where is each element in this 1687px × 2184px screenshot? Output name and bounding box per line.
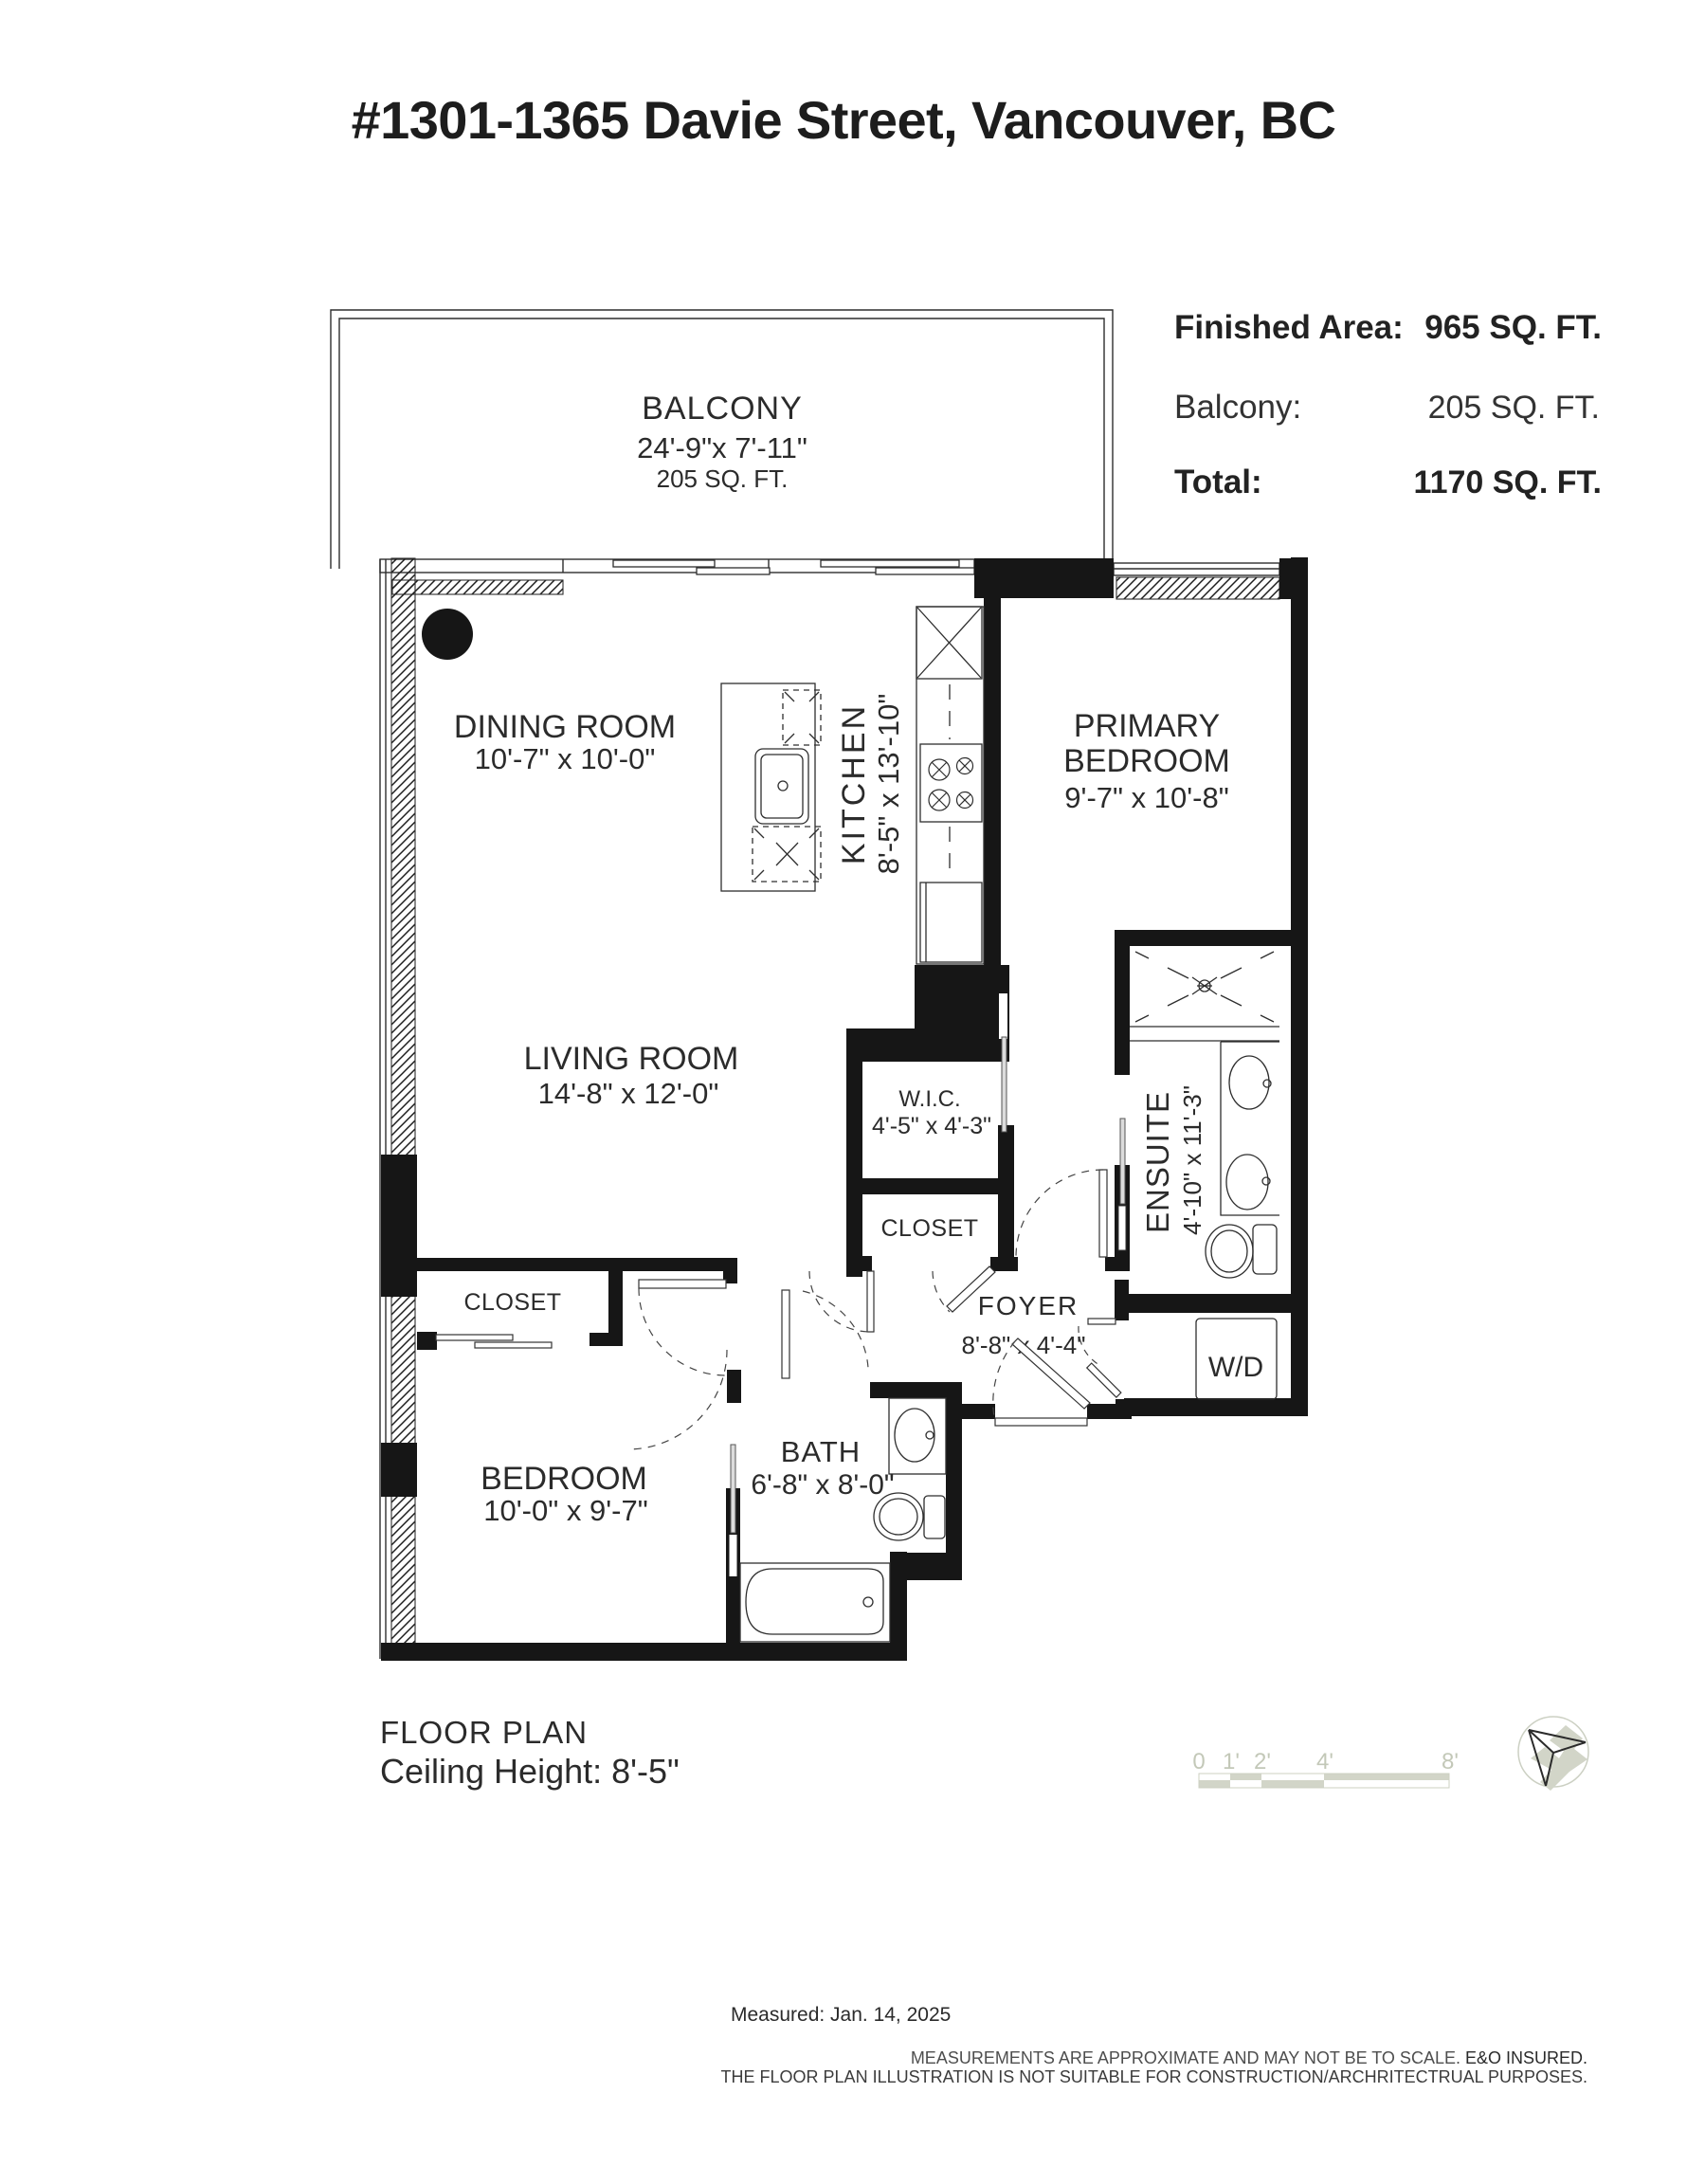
svg-text:DINING ROOM: DINING ROOM <box>454 709 676 745</box>
svg-text:THE FLOOR PLAN ILLUSTRATION IS: THE FLOOR PLAN ILLUSTRATION IS NOT SUITA… <box>721 2067 1587 2086</box>
svg-text:205 SQ. FT.: 205 SQ. FT. <box>1428 390 1600 426</box>
svg-text:BATH: BATH <box>781 1435 861 1468</box>
svg-text:BALCONY: BALCONY <box>642 391 803 427</box>
svg-text:2': 2' <box>1254 1749 1271 1774</box>
svg-text:ENSUITE: ENSUITE <box>1140 1091 1175 1233</box>
svg-text:4': 4' <box>1316 1749 1333 1774</box>
svg-text:Balcony:: Balcony: <box>1174 389 1301 426</box>
svg-text:W/D: W/D <box>1208 1352 1263 1383</box>
svg-text:#1301-1365 Davie Street, Vanco: #1301-1365 Davie Street, Vancouver, BC <box>352 90 1336 150</box>
svg-text:LIVING ROOM: LIVING ROOM <box>524 1041 739 1077</box>
svg-text:KITCHEN: KITCHEN <box>836 703 872 864</box>
svg-text:24'-9"x 7'-11": 24'-9"x 7'-11" <box>637 431 807 464</box>
svg-text:965 SQ. FT.: 965 SQ. FT. <box>1424 309 1602 346</box>
svg-text:8': 8' <box>1442 1749 1459 1774</box>
svg-text:Total:: Total: <box>1174 464 1262 500</box>
svg-text:CLOSET: CLOSET <box>463 1289 561 1316</box>
svg-text:PRIMARY: PRIMARY <box>1074 708 1220 744</box>
svg-text:FOYER: FOYER <box>978 1291 1079 1320</box>
svg-text:Finished Area:: Finished Area: <box>1174 309 1404 346</box>
svg-text:W.I.C.: W.I.C. <box>898 1086 960 1112</box>
svg-text:1170 SQ. FT.: 1170 SQ. FT. <box>1414 464 1602 500</box>
svg-text:0: 0 <box>1192 1749 1205 1774</box>
svg-text:Ceiling Height: 8'-5": Ceiling Height: 8'-5" <box>380 1752 680 1791</box>
svg-text:8'-5" x 13'-10": 8'-5" x 13'-10" <box>872 694 905 875</box>
svg-text:FLOOR PLAN: FLOOR PLAN <box>380 1715 588 1750</box>
svg-text:4'-10" x 11'-3": 4'-10" x 11'-3" <box>1178 1085 1206 1235</box>
svg-text:10'-0" x 9'-7": 10'-0" x 9'-7" <box>483 1494 647 1527</box>
svg-text:BEDROOM: BEDROOM <box>481 1461 647 1497</box>
svg-text:14'-8" x 12'-0": 14'-8" x 12'-0" <box>538 1077 719 1110</box>
svg-text:4'-5" x 4'-3": 4'-5" x 4'-3" <box>872 1113 991 1139</box>
svg-text:MEASUREMENTS ARE APPROXIMATE A: MEASUREMENTS ARE APPROXIMATE AND MAY NOT… <box>911 2048 1587 2067</box>
svg-text:6'-8" x 8'-0": 6'-8" x 8'-0" <box>751 1469 894 1501</box>
svg-text:BEDROOM: BEDROOM <box>1063 743 1230 779</box>
svg-text:CLOSET: CLOSET <box>880 1215 978 1242</box>
svg-text:Measured: Jan. 14, 2025: Measured: Jan. 14, 2025 <box>731 2004 951 2026</box>
svg-text:1': 1' <box>1223 1749 1240 1774</box>
svg-text:9'-7" x 10'-8": 9'-7" x 10'-8" <box>1064 781 1228 814</box>
svg-text:10'-7" x 10'-0": 10'-7" x 10'-0" <box>475 742 656 775</box>
svg-text:205 SQ. FT.: 205 SQ. FT. <box>657 464 789 493</box>
